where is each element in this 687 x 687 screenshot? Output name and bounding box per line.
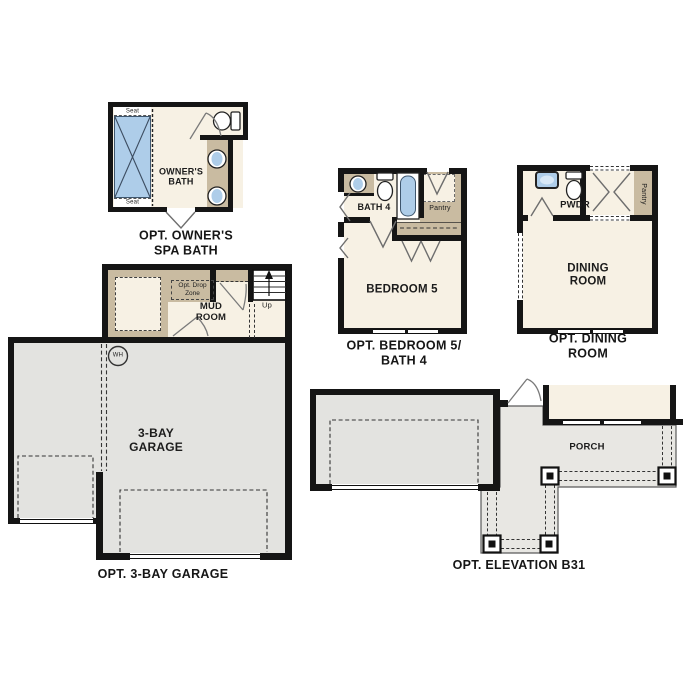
shower	[115, 109, 153, 206]
label-up: Up	[262, 302, 272, 311]
plan-graphic	[547, 473, 554, 480]
plan-graphic	[190, 113, 206, 139]
bathtub	[397, 173, 419, 219]
label-porch: PORCH	[569, 441, 604, 452]
door-opening	[531, 198, 553, 216]
caption-3-bay-garage: OPT. 3-BAY GARAGE	[98, 567, 229, 582]
floorplan-options-sheet: Seat Seat OWNER'S BATH OPT. OWNER'S SPA …	[0, 0, 687, 687]
door-opening	[402, 241, 421, 261]
plan-graphic	[353, 178, 363, 190]
label-seat-top: Seat	[126, 108, 139, 115]
door-swing	[508, 379, 541, 403]
door-opening	[340, 238, 348, 258]
toilet	[214, 112, 241, 130]
label-owners-bath: OWNER'S BATH	[159, 167, 203, 188]
parking-bay-outline	[120, 490, 267, 552]
label-opt-drop-zone: Opt. Drop Zone	[171, 280, 214, 300]
sink	[208, 150, 226, 168]
porch-column	[541, 536, 558, 553]
toilet	[566, 172, 582, 200]
porch-column	[659, 468, 676, 485]
plan-graphic	[664, 473, 671, 480]
plan-graphic	[489, 541, 496, 548]
label-seat-bottom: Seat	[126, 199, 139, 206]
label-pantry: Pantry	[639, 183, 647, 204]
label-dining-room: DINING ROOM	[567, 263, 608, 290]
plan-graphic	[377, 173, 393, 180]
caption-owners-spa-bath: OPT. OWNER'S SPA BATH	[139, 229, 233, 258]
plan-graphic	[527, 379, 541, 401]
plan-graphic	[566, 172, 582, 179]
door-opening	[340, 193, 350, 221]
label-pwdr: PWDR	[560, 199, 590, 210]
parking-bay-outline	[330, 420, 478, 484]
label-bath-4: BATH 4	[357, 202, 390, 212]
plan-graphic	[243, 284, 246, 310]
label-3-bay-garage: 3-BAY GARAGE	[129, 427, 183, 455]
label-bedroom-5: BEDROOM 5	[366, 283, 437, 296]
caption-dining-room: OPT. DINING ROOM	[539, 332, 638, 361]
door-opening	[166, 212, 195, 228]
plan-graphic	[401, 176, 416, 216]
plan-graphic	[540, 176, 554, 185]
plan-graphic	[593, 173, 609, 211]
sink	[208, 187, 226, 205]
porch-column	[542, 468, 559, 485]
plan-graphic	[212, 152, 223, 166]
sink	[536, 172, 558, 188]
plan-graphic	[173, 317, 197, 336]
plan-graphic	[212, 189, 223, 203]
sink	[350, 176, 366, 192]
staircase	[253, 270, 286, 300]
up-arrow-icon	[265, 270, 273, 279]
plan-graphic	[378, 182, 393, 201]
caption-bedroom5-bath4: OPT. BEDROOM 5/ BATH 4	[347, 339, 462, 368]
label-pantry: Pantry	[429, 205, 450, 213]
door-opening	[421, 241, 440, 261]
plan-graphic	[614, 173, 630, 211]
caption-elevation-b31: OPT. ELEVATION B31	[453, 558, 586, 573]
door-opening	[427, 172, 448, 194]
plan-graphic	[508, 379, 527, 403]
plan-graphic	[231, 112, 240, 130]
door-opening	[370, 221, 396, 247]
bifold-doors	[593, 173, 630, 211]
toilet	[377, 173, 393, 201]
plan-graphic	[567, 181, 582, 200]
label-wh: WH	[113, 353, 123, 360]
porch-column	[484, 536, 501, 553]
plan-graphic	[546, 541, 553, 548]
parking-bay-outline	[18, 456, 93, 518]
label-mud-room: MUD ROOM	[196, 301, 226, 323]
